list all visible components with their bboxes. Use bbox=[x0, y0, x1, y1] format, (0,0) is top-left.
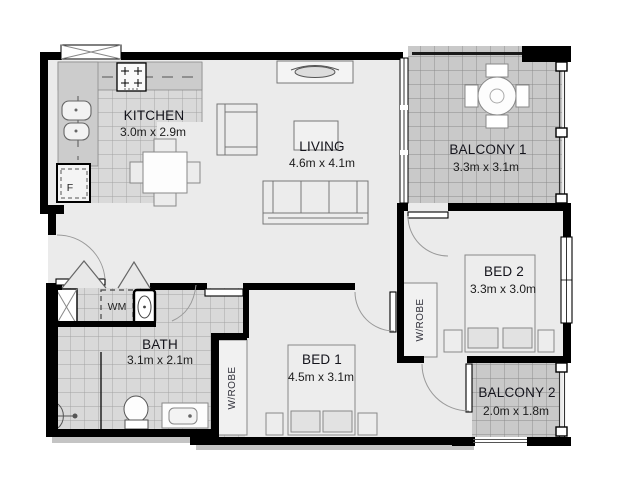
living-dims: 4.6m x 4.1m bbox=[289, 156, 355, 170]
balcony1-sliding-door bbox=[400, 58, 408, 203]
fridge-label: F bbox=[67, 182, 73, 194]
bed1-wardrobe-label: W/ROBE bbox=[227, 367, 238, 410]
linen-cupboard-icon bbox=[56, 289, 77, 325]
cooktop-icon bbox=[117, 63, 146, 91]
balcony1-name: BALCONY 1 bbox=[449, 142, 526, 157]
vanity-icon bbox=[162, 403, 208, 428]
bath-dims: 3.1m x 2.1m bbox=[127, 353, 193, 367]
bath-name: BATH bbox=[142, 337, 178, 352]
laundry-tub-icon bbox=[134, 290, 155, 324]
wall-shadow bbox=[196, 445, 474, 450]
floor-plan-page: F bbox=[0, 0, 634, 498]
bed2-window bbox=[561, 237, 572, 323]
armchair-icon bbox=[217, 104, 257, 155]
bed1-name: BED 1 bbox=[302, 352, 342, 367]
kitchen-window bbox=[61, 45, 121, 59]
floor-plan: F bbox=[0, 0, 634, 498]
balcony2-tiled-floor bbox=[472, 363, 560, 437]
washing-machine-label: WM bbox=[108, 301, 127, 313]
bed2-wardrobe-label: W/ROBE bbox=[415, 299, 426, 342]
balcony1-tiled-floor bbox=[408, 46, 562, 203]
balcony2-name: BALCONY 2 bbox=[478, 385, 555, 400]
kitchen-dims: 3.0m x 2.9m bbox=[120, 125, 186, 139]
balcony2-dims: 2.0m x 1.8m bbox=[483, 404, 549, 418]
kitchen-name: KITCHEN bbox=[124, 108, 185, 123]
fridge-icon: F bbox=[57, 164, 90, 202]
bed2-name: BED 2 bbox=[484, 264, 524, 279]
sofa-icon bbox=[263, 181, 368, 224]
balcony1-dims: 3.3m x 3.1m bbox=[453, 160, 519, 174]
living-name: LIVING bbox=[299, 139, 344, 154]
tv-unit-icon bbox=[277, 61, 353, 83]
bed2-dims: 3.3m x 3.0m bbox=[470, 282, 536, 296]
bed1-dims: 4.5m x 3.1m bbox=[288, 370, 354, 384]
